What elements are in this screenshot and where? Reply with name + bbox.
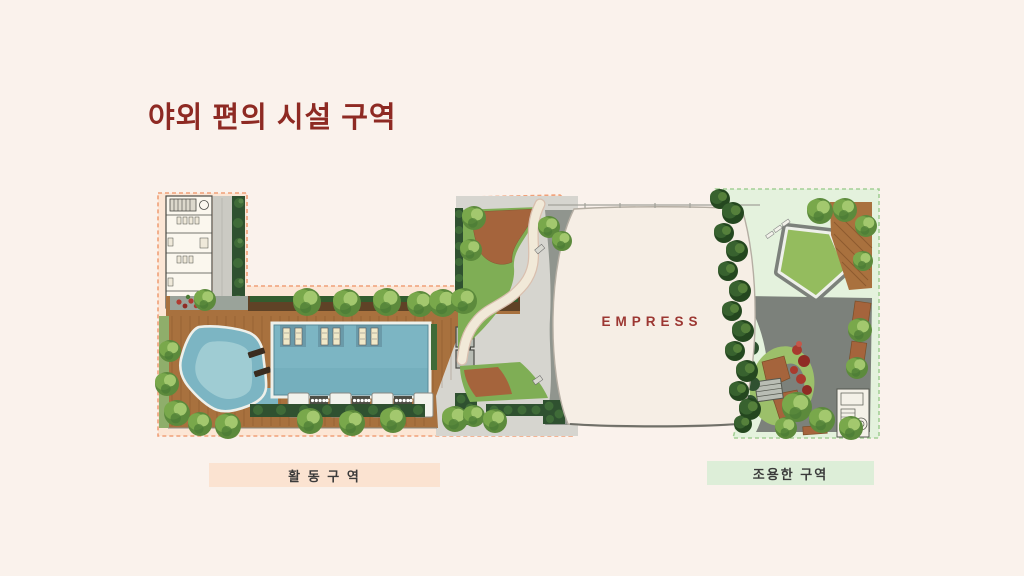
quiet-zone-label: 조용한 구역 [707,461,874,485]
hedge-column [232,196,245,308]
poolside-hedge-strip [431,324,437,370]
pool-lounger-pairs [280,325,382,347]
building-label: EMPRESS [601,314,702,329]
site-plan: EMPRESS [0,0,1024,576]
lounge-chair-dots [310,396,413,405]
walkway [213,196,232,308]
activity-zone-label: 활 동 구 역 [209,463,440,487]
